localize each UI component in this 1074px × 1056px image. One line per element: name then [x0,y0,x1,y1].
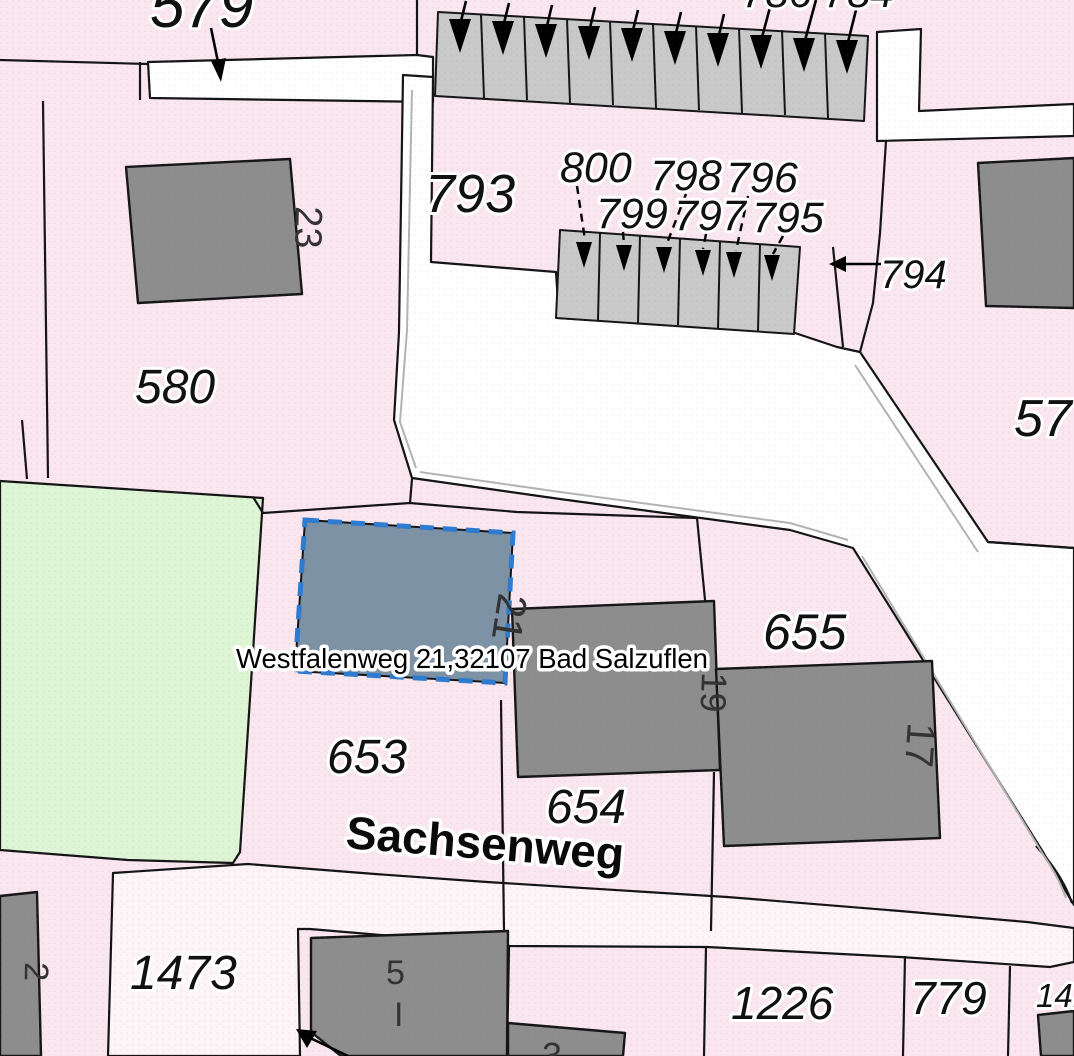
parcel-label-800: 800 [560,144,632,192]
parcel-label-1473: 1473 [130,947,237,1000]
parcel-label-57-cut: 57 [1014,390,1074,448]
parcel-label-1226: 1226 [731,977,834,1029]
parcel-label-580: 580 [135,361,215,414]
building-number-19: 19 [693,672,735,713]
parcel-label-795: 795 [752,194,825,242]
parcel-label-797: 797 [674,192,748,240]
parcel-label-653: 653 [327,731,407,784]
building-number-2: 2 [17,962,55,982]
parcel-label-579: 579 [150,0,253,41]
parcel-label-799: 799 [596,190,668,238]
parcel-label-top-cut: 786 784 [742,0,894,16]
parcel-label-779: 779 [910,972,987,1024]
paper-texture [0,0,1074,1056]
parcel-label-141-cut: 141 [1036,977,1074,1014]
building-storeys-I: I [394,996,403,1034]
parcel-label-794: 794 [880,253,947,297]
map-canvas[interactable]: 579 786 784 580 793 800 798 796 799 797 … [0,0,1074,1056]
selected-address-label: Westfalenweg 21,32107 Bad Salzuflen [236,643,708,674]
parcel-label-655: 655 [763,604,847,660]
building-number-3: 3 [542,1035,562,1056]
building-number-5: 5 [386,954,405,992]
building-number-21: 21 [483,591,537,644]
parcel-label-793: 793 [425,164,515,224]
building-number-17: 17 [896,721,943,768]
cadastral-map: 579 786 784 580 793 800 798 796 799 797 … [0,0,1074,1056]
building-number-23: 23 [286,206,329,249]
